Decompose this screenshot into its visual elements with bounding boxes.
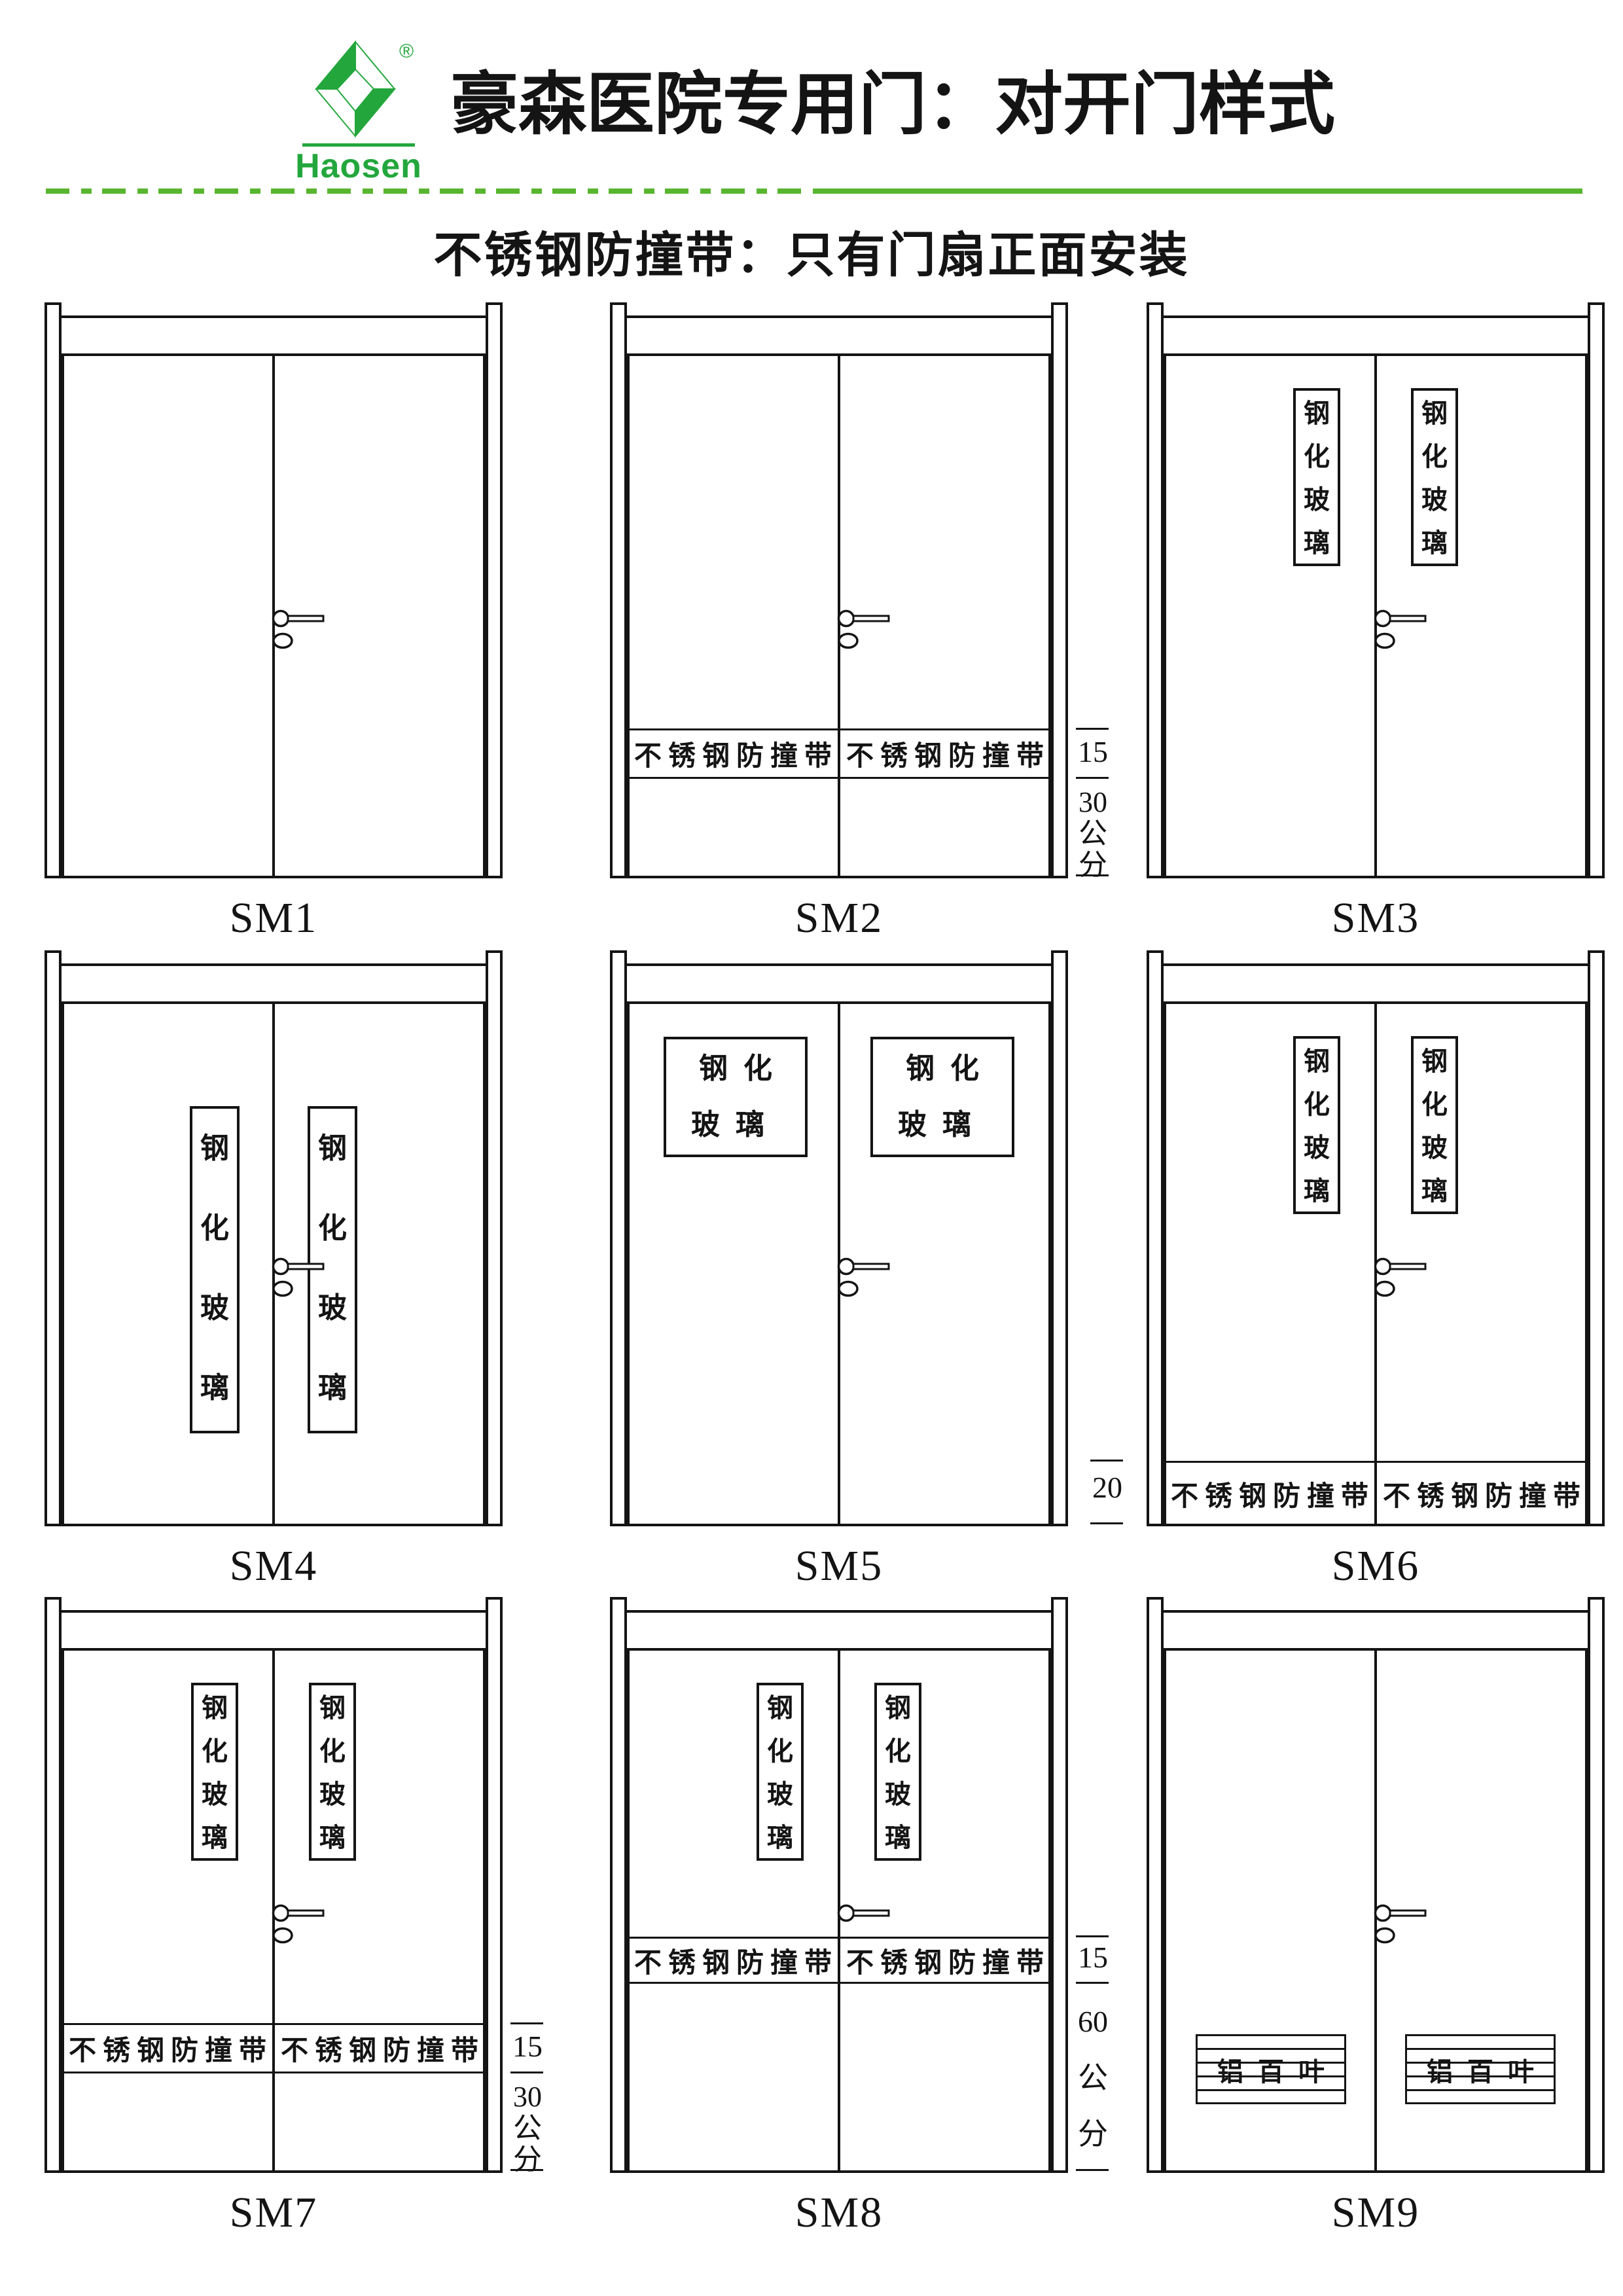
door-handle-icon xyxy=(271,607,349,651)
louver-panel-label: 铝百叶 xyxy=(1412,2051,1548,2089)
door-model-label: SM5 xyxy=(610,1541,1068,1591)
frame-post-left xyxy=(610,302,627,878)
dimension-tick xyxy=(1076,728,1109,730)
anti-collision-band: 不锈钢防撞带 不锈钢防撞带 xyxy=(1164,1461,1588,1526)
frame-lintel xyxy=(62,1610,486,1648)
frame-post-left xyxy=(45,1597,62,2173)
door-model-label: SM4 xyxy=(45,1541,503,1591)
haosen-logo-icon: ® xyxy=(306,38,424,143)
door-handle-icon xyxy=(836,1902,915,1945)
glass-panel-label: 钢化 玻璃 xyxy=(890,1039,995,1153)
door-model-label: SM2 xyxy=(610,893,1068,943)
catalog-page: { "header": { "logo": { "brand": "Haosen… xyxy=(0,0,1623,2296)
frame-post-left xyxy=(610,950,627,1526)
frame-post-left xyxy=(610,1597,627,2173)
glass-panel-label: 钢 化 玻 璃 xyxy=(200,1109,229,1428)
door-model-label: SM1 xyxy=(45,893,503,943)
page-subtitle: 不锈钢防撞带：只有门扇正面安装 xyxy=(0,216,1623,286)
glass-panel: 钢 化 玻 璃 xyxy=(1293,388,1340,566)
door-model-label: SM8 xyxy=(610,2188,1068,2238)
door-handle-icon xyxy=(1373,1902,1452,1945)
glass-panel: 钢 化 玻 璃 xyxy=(1293,1036,1340,1214)
dimension-value: 15 xyxy=(1073,734,1113,769)
door-model-label: SM3 xyxy=(1147,893,1605,943)
glass-panel: 钢 化 玻 璃 xyxy=(1411,1036,1458,1214)
frame-post-right xyxy=(486,950,503,1526)
dimension-value: 30 公 分 xyxy=(508,2081,547,2176)
band-label-left: 不锈钢防撞带 xyxy=(627,730,839,777)
frame-post-right xyxy=(1051,302,1068,878)
door-figure-sm8: 钢 化 玻 璃 钢 化 玻 璃 不锈钢防撞带 不锈钢防撞带 15 60 公 分 … xyxy=(610,1597,1068,2173)
glass-panel-label: 钢 化 玻 璃 xyxy=(1421,1039,1448,1213)
door-model-label: SM7 xyxy=(45,2188,503,2238)
dimension-annotation: 15 30 公 分 xyxy=(1072,302,1137,878)
dimension-annotation: 15 60 公 分 xyxy=(1072,1597,1137,2173)
dimension-value: 15 xyxy=(508,2029,547,2064)
louver-panel-label: 铝百叶 xyxy=(1203,2051,1339,2089)
door-handle-icon xyxy=(836,1255,915,1299)
door-figure-sm3: 钢 化 玻 璃 钢 化 玻 璃 SM3 xyxy=(1147,302,1605,878)
frame-post-right xyxy=(1588,1597,1605,2173)
door-handle-icon xyxy=(271,1255,349,1299)
green-rule-solid xyxy=(813,188,1582,194)
dimension-value: 60 公 分 xyxy=(1073,1994,1113,2162)
door-handle-icon xyxy=(1373,607,1452,651)
louver-panel: 铝百叶 xyxy=(1405,2034,1556,2104)
frame-lintel xyxy=(627,315,1051,353)
glass-panel-label: 钢 化 玻 璃 xyxy=(885,1685,911,1859)
frame-post-left xyxy=(45,950,62,1526)
glass-panel: 钢 化 玻 璃 xyxy=(309,1683,356,1861)
door-handle-icon xyxy=(1373,1255,1452,1299)
frame-lintel xyxy=(1164,315,1588,353)
glass-panel-label: 钢 化 玻 璃 xyxy=(1421,391,1448,565)
glass-panel-label: 钢 化 玻 璃 xyxy=(1304,391,1330,565)
frame-post-left xyxy=(1147,950,1164,1526)
frame-post-left xyxy=(1147,1597,1164,2173)
band-label-right: 不锈钢防撞带 xyxy=(1376,1463,1588,1524)
glass-panel-label: 钢 化 玻 璃 xyxy=(1304,1039,1330,1213)
glass-panel: 钢 化 玻 璃 xyxy=(1411,388,1458,566)
glass-panel: 钢化 玻璃 xyxy=(870,1037,1014,1157)
door-figure-sm2: 不锈钢防撞带 不锈钢防撞带 15 30 公 分 SM2 xyxy=(610,302,1068,878)
door-model-label: SM9 xyxy=(1147,2188,1605,2238)
glass-panel-label: 钢 化 玻 璃 xyxy=(319,1685,346,1859)
frame-post-right xyxy=(486,302,503,878)
band-label-right: 不锈钢防撞带 xyxy=(839,730,1051,777)
glass-panel-label: 钢 化 玻 璃 xyxy=(202,1685,228,1859)
band-label-left: 不锈钢防撞带 xyxy=(1164,1463,1376,1524)
dimension-tick xyxy=(1090,1522,1123,1524)
frame-post-right xyxy=(1051,1597,1068,2173)
door-figure-sm7: 钢 化 玻 璃 钢 化 玻 璃 不锈钢防撞带 不锈钢防撞带 15 30 公 分 … xyxy=(45,1597,503,2173)
door-figure-sm9: 铝百叶 铝百叶 SM9 xyxy=(1147,1597,1605,2173)
dimension-tick xyxy=(1090,1460,1123,1462)
page-title: 豪森医院专用门：对开门样式 xyxy=(450,48,1432,147)
door-figure-sm1: SM1 xyxy=(45,302,503,878)
glass-panel: 钢 化 玻 璃 xyxy=(191,1683,238,1861)
frame-lintel xyxy=(627,963,1051,1001)
dimension-tick xyxy=(510,2072,543,2073)
dimension-value: 30 公 分 xyxy=(1073,787,1113,881)
door-handle-icon xyxy=(271,1902,349,1945)
band-label-left: 不锈钢防撞带 xyxy=(62,2025,274,2072)
band-label-left: 不锈钢防撞带 xyxy=(627,1939,839,1982)
frame-post-right xyxy=(1051,950,1068,1526)
frame-lintel xyxy=(627,1610,1051,1648)
frame-post-left xyxy=(45,302,62,878)
door-handle-icon xyxy=(836,607,915,651)
glass-panel-label: 钢化 玻璃 xyxy=(683,1039,788,1153)
frame-post-right xyxy=(1588,950,1605,1526)
door-figure-sm6: 钢 化 玻 璃 钢 化 玻 璃 不锈钢防撞带 不锈钢防撞带 20 SM6 xyxy=(1147,950,1605,1526)
frame-post-left xyxy=(1147,302,1164,878)
dimension-value: 15 xyxy=(1073,1940,1113,1975)
dimension-annotation: 15 30 公 分 xyxy=(507,1597,572,2173)
door-model-label: SM6 xyxy=(1147,1541,1605,1591)
band-label-right: 不锈钢防撞带 xyxy=(274,2025,486,2072)
anti-collision-band: 不锈钢防撞带 不锈钢防撞带 xyxy=(62,2023,486,2073)
glass-panel: 钢化 玻璃 xyxy=(664,1037,808,1157)
frame-post-right xyxy=(486,1597,503,2173)
dimension-tick xyxy=(1076,777,1109,779)
frame-post-right xyxy=(1588,302,1605,878)
logo-wordmark: Haosen xyxy=(289,147,428,186)
glass-panel: 钢 化 玻 璃 xyxy=(874,1683,921,1861)
dimension-tick xyxy=(1076,1982,1109,1984)
frame-lintel xyxy=(1164,963,1588,1001)
dimension-tick xyxy=(1076,2169,1109,2171)
dimension-value: 20 xyxy=(1088,1470,1127,1505)
frame-lintel xyxy=(1164,1610,1588,1648)
louver-panel: 铝百叶 xyxy=(1196,2034,1346,2104)
dimension-annotation: 20 xyxy=(1086,950,1143,1526)
dimension-tick xyxy=(1076,1935,1109,1937)
anti-collision-band: 不锈钢防撞带 不锈钢防撞带 xyxy=(627,728,1051,779)
dimension-tick xyxy=(510,2022,543,2024)
green-rule-dashed xyxy=(46,188,813,194)
glass-panel-label: 钢 化 玻 璃 xyxy=(767,1685,793,1859)
door-figure-sm5: 钢化 玻璃 钢化 玻璃 SM5 xyxy=(610,950,1068,1526)
glass-panel: 钢 化 玻 璃 xyxy=(757,1683,804,1861)
frame-lintel xyxy=(62,315,486,353)
frame-lintel xyxy=(62,963,486,1001)
glass-panel: 钢 化 玻 璃 xyxy=(190,1106,240,1433)
door-figure-sm4: 钢 化 玻 璃 钢 化 玻 璃 SM4 xyxy=(45,950,503,1526)
registered-mark: ® xyxy=(399,41,414,62)
